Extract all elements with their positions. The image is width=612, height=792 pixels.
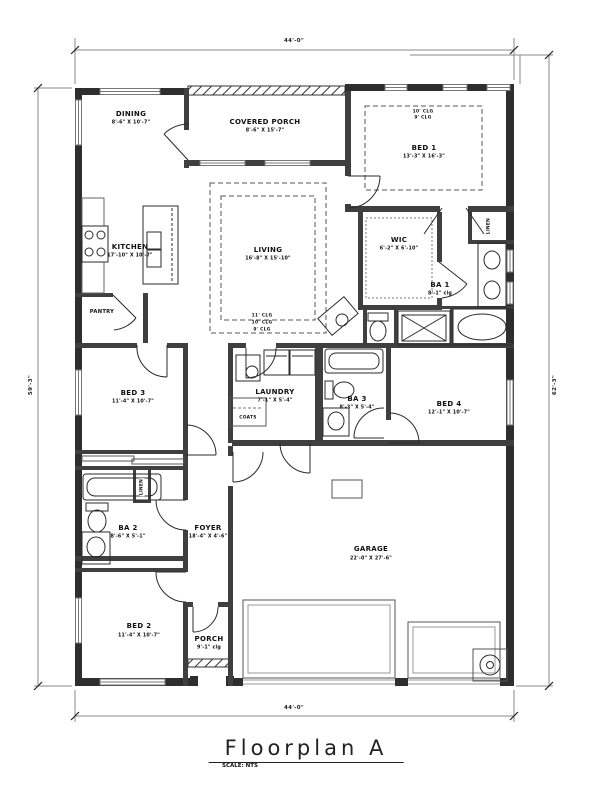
closet-label-coats: COATS: [238, 416, 258, 421]
room-label-garage: GARAGE: [354, 545, 388, 553]
room-label-bed3: BED 3: [121, 389, 146, 397]
ba3-sink: [323, 408, 349, 436]
bed3-closet-doors: [82, 456, 184, 464]
room-dims-bed4: 12'-1" X 10'-7": [428, 411, 470, 416]
room-dims-dining: 8'-6" X 10'-7": [112, 121, 150, 126]
ba1-toilet: [368, 313, 388, 341]
interior-walls: [75, 88, 514, 686]
dryer: [290, 350, 315, 375]
room-label-bed4: BED 4: [437, 400, 462, 408]
living-ceiling-note-3: 9' CLG: [252, 328, 271, 333]
living-ceiling-note-1: 11' CLG: [251, 314, 274, 319]
room-label-ba2: BA 2: [118, 524, 137, 532]
room-dims-porch: 9'-1" clg: [197, 646, 221, 651]
room-label-foyer: FOYER: [194, 524, 221, 532]
room-label-ba1: BA 1: [430, 281, 449, 289]
room-dims-ba1: 8'-1" clg: [428, 292, 452, 297]
room-label-bed2: BED 2: [127, 622, 152, 630]
dimension-top: 44'-0": [284, 38, 304, 44]
ba2-toilet: [86, 503, 108, 532]
ba1-vanity: [478, 243, 506, 307]
attic-access: [332, 480, 362, 498]
fireplace-circle: [336, 314, 348, 326]
room-label-pantry: PANTRY: [90, 309, 115, 315]
garage-door-1: [243, 600, 395, 678]
living-ceiling-note-2: 10' CLG: [251, 321, 274, 326]
closet-label-linen2: LINEN: [140, 478, 145, 496]
room-dims-ba2: 8'-6" X 5'-1": [111, 535, 146, 540]
room-dims-bed3: 11'-4" X 10'-7": [112, 400, 154, 405]
utility-sink: [236, 355, 260, 381]
room-label-living: LIVING: [254, 246, 283, 254]
room-label-kitchen: KITCHEN: [112, 243, 149, 251]
windows: [76, 85, 514, 686]
room-label-laundry: LAUNDRY: [255, 388, 294, 396]
garage-door-2: [408, 622, 500, 678]
room-dims-ba3: 8'-3" X 5'-4": [340, 406, 375, 411]
room-dims-bed2: 11'-4" X 10'-7": [118, 634, 160, 639]
room-label-dining: DINING: [116, 110, 146, 118]
dimension-left: 59'-3": [28, 375, 34, 395]
room-label-covered-porch: COVERED PORCH: [230, 118, 301, 126]
scale-note: SCALE: NTS: [222, 763, 258, 769]
dimension-lines: [34, 38, 553, 722]
room-dims-laundry: 7'-1" X 5'-4": [258, 399, 293, 404]
water-heater: [473, 649, 507, 681]
room-dims-foyer: 18'-4" X 4'-6": [189, 535, 227, 540]
floorplan-drawing: [0, 0, 612, 792]
exterior-walls: [75, 84, 514, 686]
dimension-ticks: [34, 46, 553, 720]
closet-label-linen1: LINEN: [487, 217, 492, 235]
page-title: Floorplan A: [209, 736, 404, 763]
room-dims-bed1: 13'-3" X 16'-3": [403, 155, 445, 160]
room-dims-garage: 22'-0" X 27'-6": [350, 557, 392, 562]
fixtures: [82, 198, 512, 681]
room-dims-kitchen: 17'-10" X 10'-7": [107, 254, 153, 259]
doors: [113, 124, 484, 632]
room-dims-wic: 6'-2" X 6'-10": [380, 247, 418, 252]
dimension-bottom: 44'-0": [284, 705, 304, 711]
room-label-bed1: BED 1: [412, 144, 437, 152]
stove: [82, 226, 108, 262]
room-dims-covered-porch: 8'-6" X 15'-7": [246, 129, 284, 134]
room-label-ba3: BA 3: [347, 395, 366, 403]
ba1-tub: [453, 309, 512, 345]
room-label-wic: WIC: [391, 236, 407, 244]
floorplan-sheet: DINING 8'-6" X 10'-7" COVERED PORCH 8'-6…: [0, 0, 612, 792]
washer: [264, 350, 289, 375]
room-label-porch: PORCH: [195, 635, 224, 643]
dimension-right: 62'-3": [552, 375, 558, 395]
bed1-ceiling-note-2: 9' CLG: [413, 116, 432, 121]
ba1-shower: [398, 311, 450, 345]
ba3-tub: [325, 349, 383, 373]
room-dims-living: 16'-8" X 15'-10": [245, 257, 291, 262]
bed1-ceiling-note-1: 10' CLG: [412, 110, 435, 115]
